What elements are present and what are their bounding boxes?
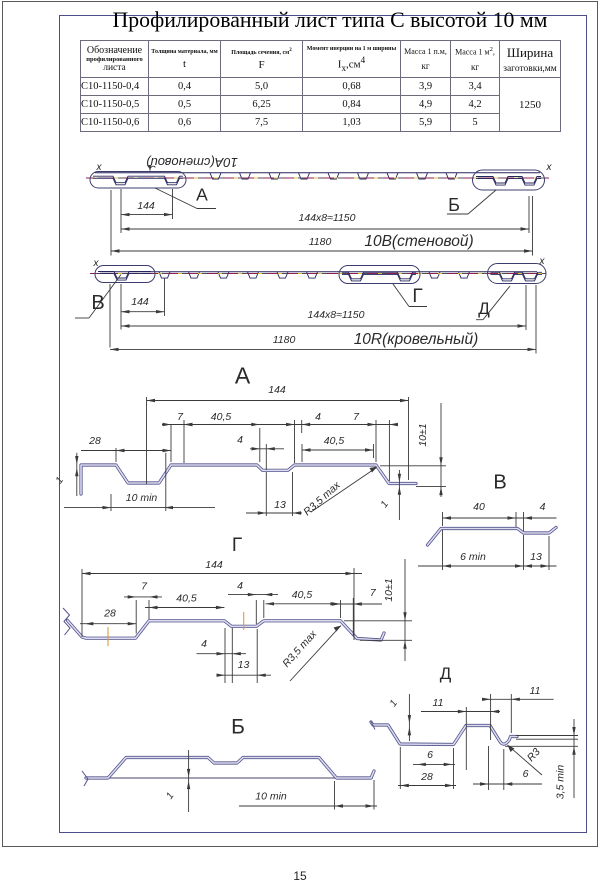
svg-text:6: 6 — [427, 749, 433, 761]
svg-text:10 min: 10 min — [126, 492, 158, 504]
svg-text:x: x — [546, 162, 553, 173]
svg-text:40: 40 — [473, 501, 485, 513]
svg-text:7: 7 — [177, 411, 184, 423]
svg-text:6: 6 — [523, 768, 529, 780]
svg-text:4: 4 — [237, 580, 243, 592]
svg-text:10±1: 10±1 — [417, 423, 429, 446]
svg-text:В: В — [91, 292, 104, 314]
svg-text:40,5: 40,5 — [211, 411, 232, 423]
svg-text:R3,5 max: R3,5 max — [301, 479, 343, 518]
svg-text:R3: R3 — [525, 746, 543, 764]
svg-text:144: 144 — [131, 296, 149, 308]
svg-text:В: В — [493, 472, 506, 494]
svg-text:40,5: 40,5 — [176, 593, 197, 605]
svg-text:7: 7 — [370, 587, 377, 599]
svg-text:А: А — [235, 363, 251, 389]
svg-text:28: 28 — [103, 608, 116, 620]
svg-text:x: x — [93, 258, 100, 269]
svg-text:x: x — [96, 162, 103, 173]
svg-text:4: 4 — [201, 638, 207, 650]
svg-text:1: 1 — [388, 698, 400, 709]
svg-text:Д: Д — [478, 299, 490, 318]
svg-text:1: 1 — [379, 499, 391, 510]
svg-text:10 min: 10 min — [255, 791, 287, 803]
svg-text:1: 1 — [54, 475, 66, 486]
svg-text:x: x — [539, 256, 546, 267]
svg-text:1: 1 — [164, 791, 176, 802]
svg-text:40,5: 40,5 — [324, 435, 345, 447]
svg-text:4: 4 — [540, 501, 546, 513]
svg-text:Д: Д — [440, 664, 452, 683]
svg-text:Б: Б — [448, 195, 460, 215]
svg-text:7: 7 — [141, 581, 148, 593]
svg-text:1180: 1180 — [273, 334, 296, 346]
svg-text:28: 28 — [420, 771, 433, 783]
svg-text:10±1: 10±1 — [383, 578, 395, 601]
svg-text:13: 13 — [530, 551, 542, 563]
svg-text:144x8≈1150: 144x8≈1150 — [299, 212, 356, 224]
svg-text:А: А — [196, 185, 208, 205]
svg-text:40,5: 40,5 — [292, 589, 313, 601]
svg-text:3,5 min: 3,5 min — [555, 765, 567, 800]
svg-text:Г: Г — [412, 286, 422, 307]
svg-text:144: 144 — [205, 559, 223, 571]
svg-text:10А(стеновой): 10А(стеновой) — [146, 155, 238, 170]
svg-text:11: 11 — [433, 697, 444, 709]
svg-text:144: 144 — [268, 384, 286, 396]
svg-text:28: 28 — [88, 435, 101, 447]
svg-text:144: 144 — [137, 200, 155, 212]
svg-text:Г: Г — [232, 535, 242, 556]
svg-text:13: 13 — [238, 659, 250, 671]
svg-text:6 min: 6 min — [460, 551, 486, 563]
svg-text:1180: 1180 — [309, 236, 332, 248]
svg-text:11: 11 — [530, 685, 541, 697]
svg-text:10R(кровельный): 10R(кровельный) — [354, 331, 479, 348]
svg-text:4: 4 — [237, 434, 243, 446]
svg-text:7: 7 — [353, 411, 360, 423]
svg-text:R3,5 max: R3,5 max — [280, 628, 319, 670]
svg-text:144x8≈1150: 144x8≈1150 — [308, 309, 365, 321]
svg-text:13: 13 — [274, 499, 286, 511]
svg-text:4: 4 — [315, 411, 321, 423]
svg-text:10В(стеновой): 10В(стеновой) — [364, 233, 473, 250]
svg-text:Б: Б — [231, 716, 245, 739]
